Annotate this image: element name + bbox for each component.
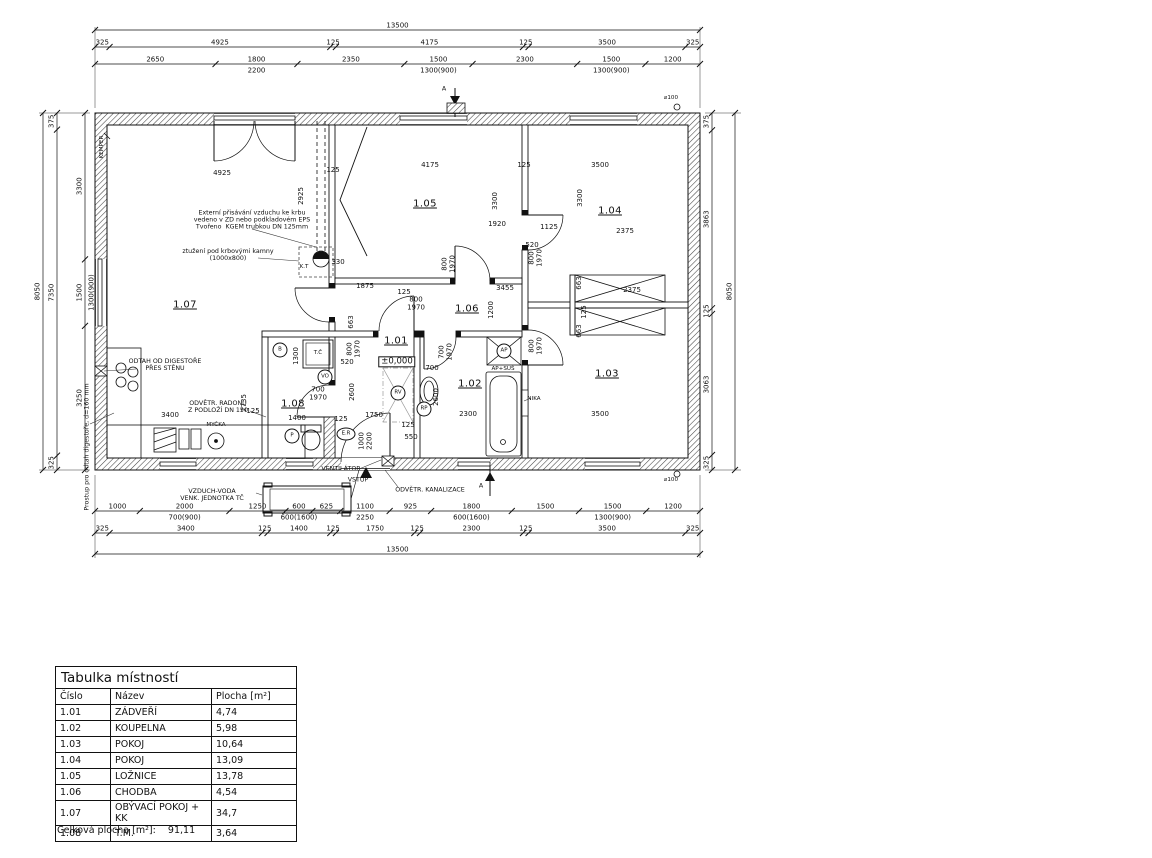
svg-text:7350: 7350 bbox=[48, 284, 56, 302]
door-103 bbox=[528, 330, 563, 365]
table-row: 1.07OBÝVACÍ POKOJ + KK34,7 bbox=[56, 801, 297, 826]
window-top-bedroom bbox=[400, 113, 467, 125]
svg-text:325: 325 bbox=[686, 525, 699, 533]
svg-text:625: 625 bbox=[320, 503, 333, 511]
door-108 bbox=[297, 385, 329, 417]
column-header-plocha: Plocha [m²] bbox=[212, 689, 297, 705]
table-title: Tabulka místností bbox=[56, 667, 297, 689]
svg-text:1500: 1500 bbox=[536, 503, 554, 511]
svg-text:3300: 3300 bbox=[76, 177, 84, 195]
extension-lines bbox=[39, 27, 741, 558]
heating-manifold-field bbox=[383, 368, 413, 422]
bathtub bbox=[486, 372, 521, 456]
table-row: 1.02KOUPELNA5,98 bbox=[56, 721, 297, 737]
fan-symbol bbox=[382, 456, 394, 466]
svg-text:3500: 3500 bbox=[598, 39, 616, 47]
svg-text:2650: 2650 bbox=[146, 56, 164, 64]
window-bottom-room103 bbox=[585, 458, 640, 470]
svg-text:3063: 3063 bbox=[703, 376, 711, 394]
svg-text:325: 325 bbox=[686, 39, 699, 47]
toilet bbox=[301, 425, 321, 450]
table-row: 1.05LOŽNICE13,78 bbox=[56, 769, 297, 785]
svg-text:2000: 2000 bbox=[176, 503, 194, 511]
svg-text:325: 325 bbox=[703, 456, 711, 469]
svg-text:600(1600): 600(1600) bbox=[453, 514, 490, 522]
table-header-row: Číslo Název Plocha [m²] bbox=[56, 689, 297, 705]
door-102 bbox=[424, 337, 456, 369]
svg-text:1200: 1200 bbox=[664, 56, 682, 64]
floorplan-sheet: { "table": { "title": "Tabulka místností… bbox=[0, 0, 1152, 858]
window-bottom-bath bbox=[458, 458, 490, 470]
svg-text:1300(900): 1300(900) bbox=[88, 274, 96, 311]
door-107 bbox=[295, 288, 329, 322]
svg-text:8050: 8050 bbox=[34, 283, 42, 301]
svg-text:1000: 1000 bbox=[108, 503, 126, 511]
svg-text:4925: 4925 bbox=[211, 39, 229, 47]
svg-text:2300: 2300 bbox=[516, 56, 534, 64]
door-entrance bbox=[341, 413, 390, 462]
svg-text:600: 600 bbox=[292, 503, 305, 511]
svg-text:3400: 3400 bbox=[177, 525, 195, 533]
door-105 bbox=[455, 246, 490, 281]
window-top-room104 bbox=[570, 113, 637, 125]
window-bottom-kitchen bbox=[160, 458, 196, 470]
window-left-living bbox=[95, 259, 107, 326]
column-header-cislo: Číslo bbox=[56, 689, 111, 705]
svg-text:1100: 1100 bbox=[356, 503, 374, 511]
room-table: Tabulka místností Číslo Název Plocha [m²… bbox=[55, 666, 297, 842]
heat-pump-outdoor-unit bbox=[263, 470, 359, 516]
door-jambs bbox=[329, 210, 528, 385]
installation-shaft bbox=[324, 417, 335, 458]
window-top-terrace bbox=[214, 113, 295, 125]
svg-text:3500: 3500 bbox=[598, 525, 616, 533]
column-header-nazev: Název bbox=[111, 689, 212, 705]
section-markers bbox=[104, 88, 680, 496]
table-row: 1.01ZÁDVEŘÍ4,74 bbox=[56, 705, 297, 721]
svg-text:325: 325 bbox=[96, 525, 109, 533]
door-104 bbox=[528, 215, 563, 250]
svg-text:700(900): 700(900) bbox=[169, 514, 201, 522]
bathroom-fixtures bbox=[420, 337, 521, 456]
dimension-chains: 1350032549251254175125350032526501800220… bbox=[34, 22, 739, 558]
washbasin bbox=[420, 377, 438, 405]
svg-text:1750: 1750 bbox=[366, 525, 384, 533]
dishwasher bbox=[208, 433, 224, 449]
svg-text:2200: 2200 bbox=[248, 67, 266, 75]
svg-text:375: 375 bbox=[703, 115, 711, 128]
svg-text:4175: 4175 bbox=[421, 39, 439, 47]
leader-lines bbox=[90, 229, 531, 495]
svg-text:2350: 2350 bbox=[342, 56, 360, 64]
svg-text:1500: 1500 bbox=[604, 503, 622, 511]
svg-text:1300(900): 1300(900) bbox=[594, 514, 631, 522]
total-area-label: Celková plocha [m²]: bbox=[57, 825, 156, 836]
total-area-value: 91,11 bbox=[168, 825, 195, 836]
table-row: 1.06CHODBA4,54 bbox=[56, 785, 297, 801]
svg-text:1400: 1400 bbox=[290, 525, 308, 533]
downpipe-bottom bbox=[674, 471, 680, 477]
svg-text:1500: 1500 bbox=[602, 56, 620, 64]
windows bbox=[95, 113, 640, 470]
svg-text:2250: 2250 bbox=[356, 514, 374, 522]
svg-text:925: 925 bbox=[404, 503, 417, 511]
svg-text:8050: 8050 bbox=[726, 283, 734, 301]
svg-text:1500: 1500 bbox=[76, 284, 84, 302]
french-door-leafs bbox=[214, 121, 295, 161]
wall-niche bbox=[522, 390, 528, 416]
svg-text:1200: 1200 bbox=[664, 503, 682, 511]
washer-dryer bbox=[487, 337, 521, 365]
svg-text:375: 375 bbox=[48, 115, 56, 128]
table-row: 1.04POKOJ13,09 bbox=[56, 753, 297, 769]
svg-text:3250: 3250 bbox=[76, 389, 84, 407]
svg-text:1250: 1250 bbox=[249, 503, 267, 511]
svg-text:1500: 1500 bbox=[430, 56, 448, 64]
door-101 bbox=[379, 296, 414, 331]
table-row: 1.03POKOJ10,64 bbox=[56, 737, 297, 753]
svg-text:3863: 3863 bbox=[703, 210, 711, 228]
cooktop bbox=[116, 363, 138, 391]
svg-text:1800: 1800 bbox=[248, 56, 266, 64]
svg-text:13500: 13500 bbox=[386, 22, 408, 30]
heat-pump-indoor bbox=[303, 340, 333, 368]
svg-text:125: 125 bbox=[703, 304, 711, 317]
window-bottom-tm bbox=[286, 458, 313, 470]
sink bbox=[154, 428, 201, 452]
downpipe-top bbox=[674, 104, 680, 110]
svg-text:1300(900): 1300(900) bbox=[420, 67, 457, 75]
svg-text:600(1600): 600(1600) bbox=[281, 514, 318, 522]
svg-text:325: 325 bbox=[48, 456, 56, 469]
svg-text:1300(900): 1300(900) bbox=[593, 67, 630, 75]
svg-text:1800: 1800 bbox=[463, 503, 481, 511]
interior-walls bbox=[262, 125, 688, 458]
table-title-row: Tabulka místností bbox=[56, 667, 297, 689]
svg-text:325: 325 bbox=[96, 39, 109, 47]
kitchen bbox=[95, 348, 305, 458]
table-footer: Celková plocha [m²]: 91,11 bbox=[57, 825, 195, 836]
svg-text:2300: 2300 bbox=[463, 525, 481, 533]
svg-text:13500: 13500 bbox=[386, 546, 408, 554]
